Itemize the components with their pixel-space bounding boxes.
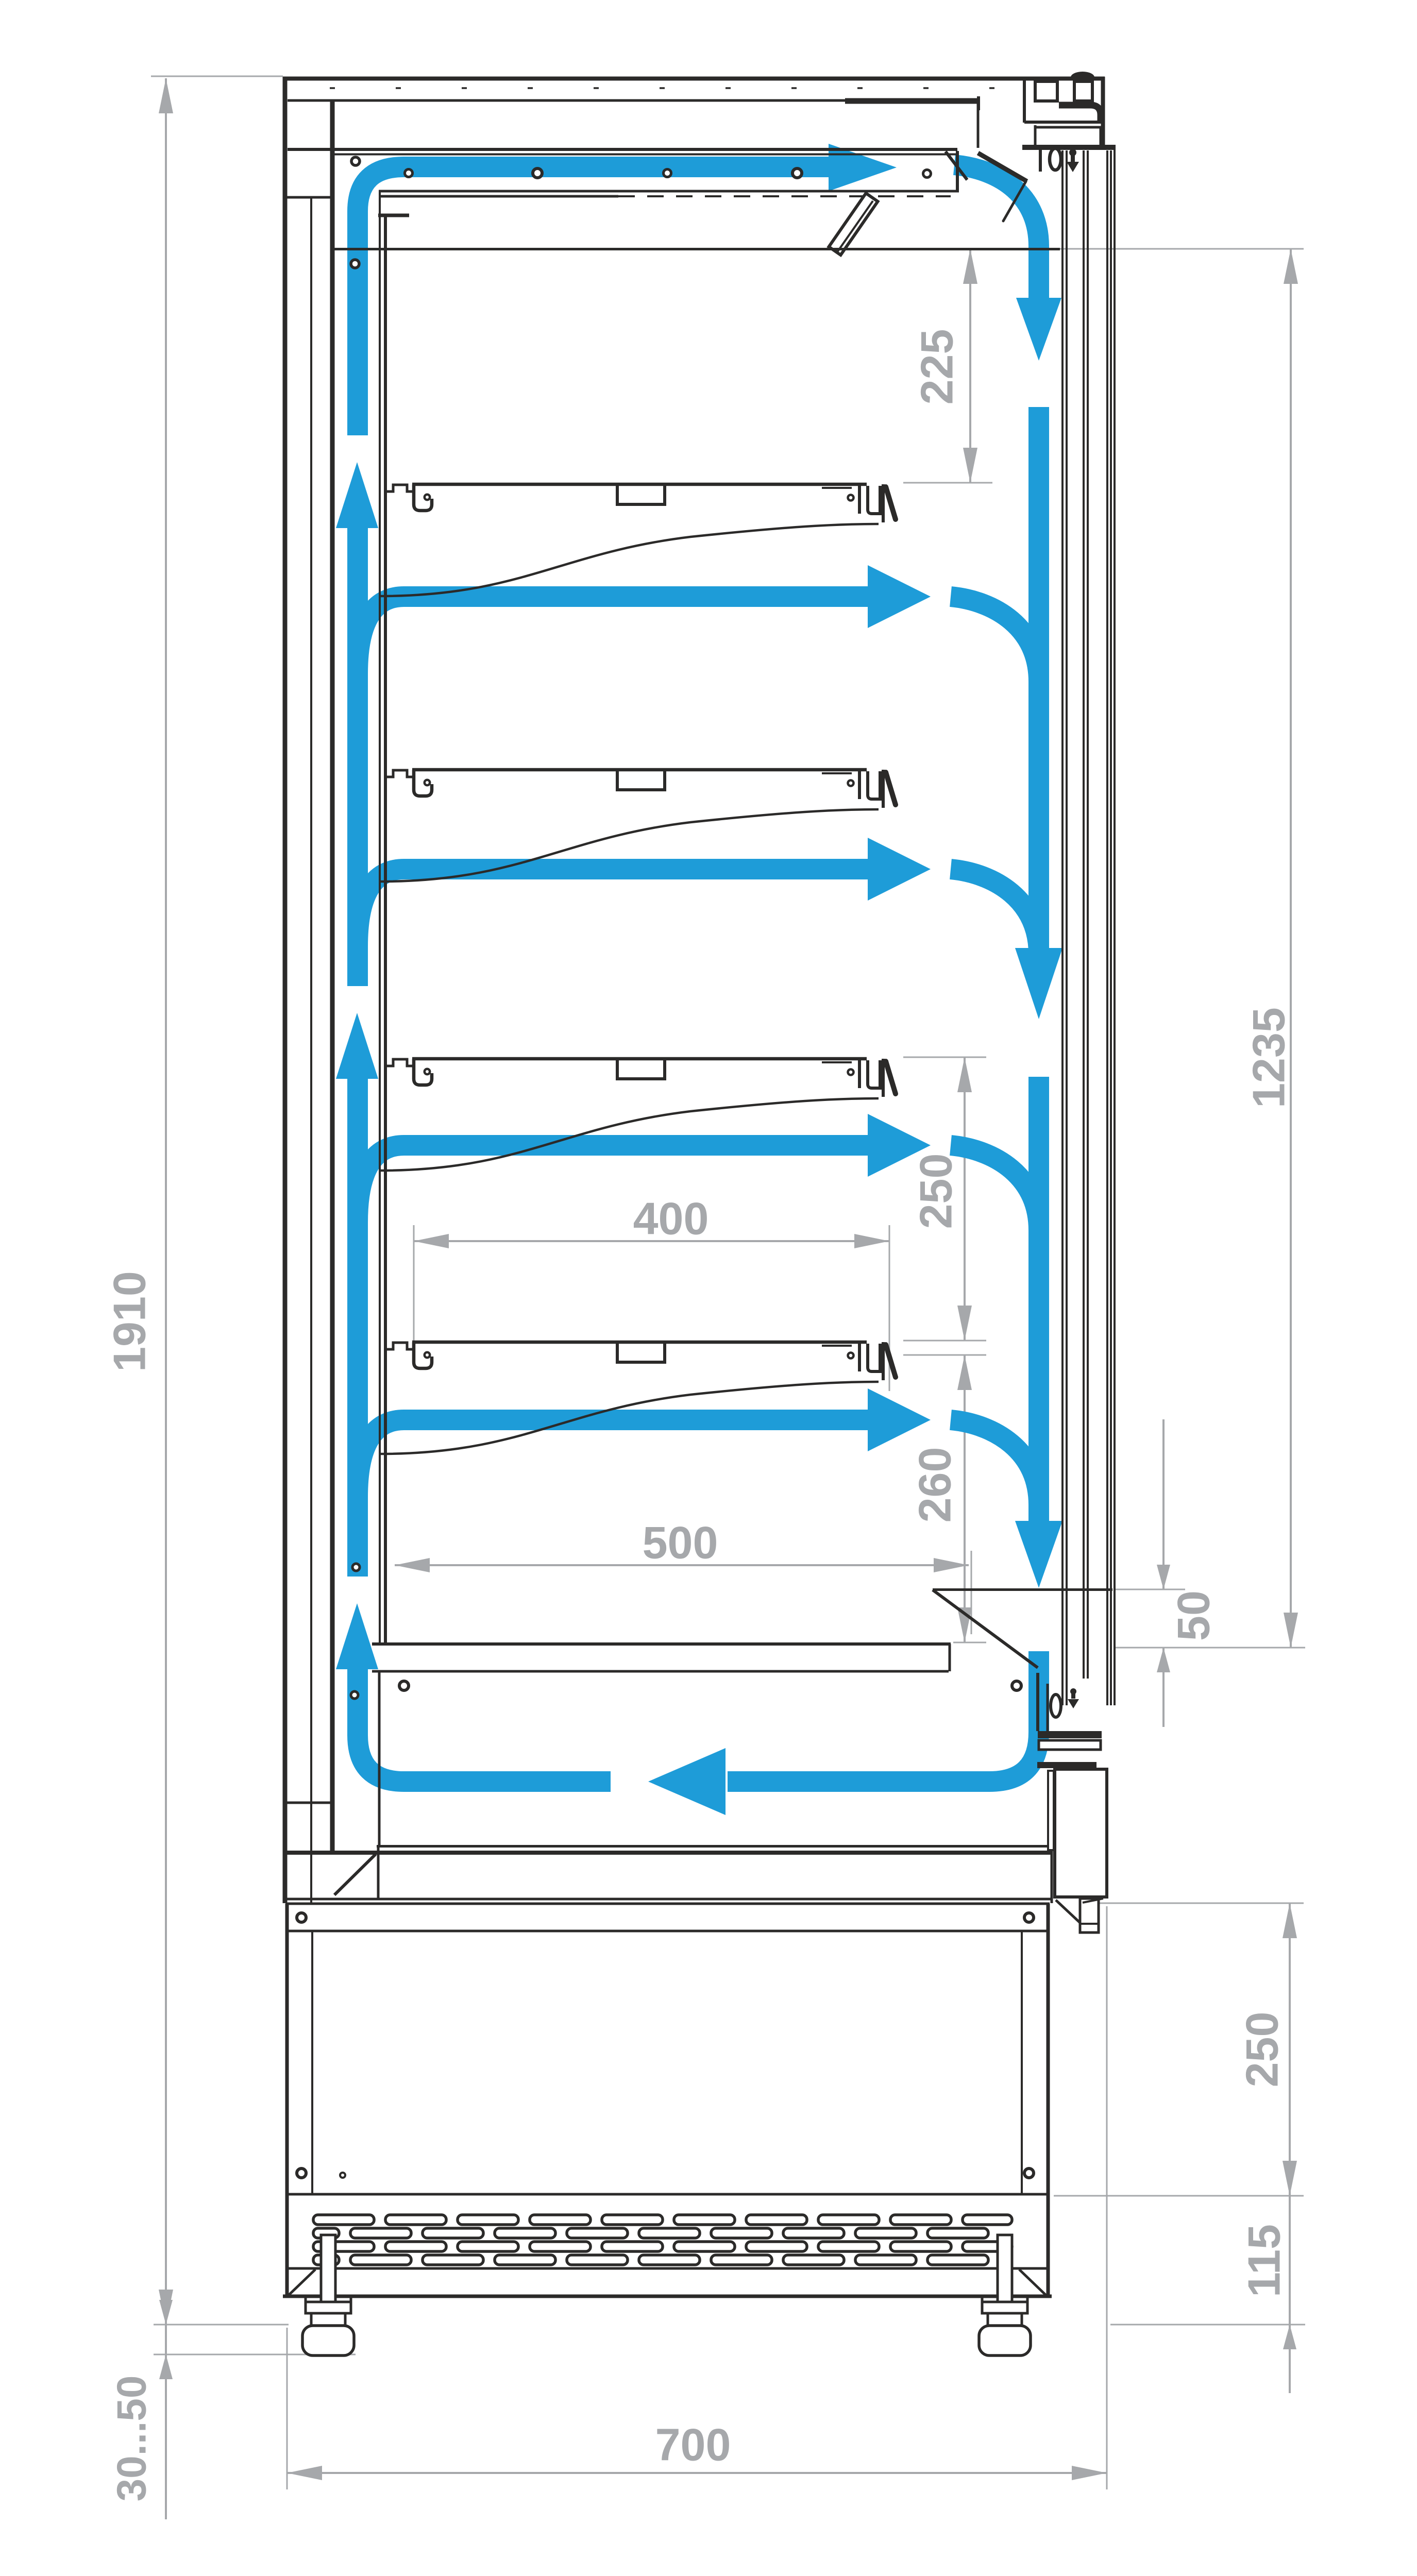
svg-text:500: 500 [643, 1517, 718, 1568]
svg-text:260: 260 [909, 1447, 960, 1523]
svg-text:1235: 1235 [1243, 1007, 1294, 1108]
svg-text:250: 250 [910, 1154, 961, 1229]
svg-text:30...50: 30...50 [109, 2376, 155, 2502]
svg-text:50: 50 [1168, 1590, 1219, 1641]
svg-text:1910: 1910 [104, 1271, 155, 1372]
svg-text:400: 400 [633, 1193, 709, 1244]
svg-text:250: 250 [1237, 2012, 1288, 2088]
svg-text:225: 225 [912, 329, 963, 405]
svg-text:115: 115 [1239, 2224, 1290, 2297]
svg-text:700: 700 [655, 2419, 731, 2470]
